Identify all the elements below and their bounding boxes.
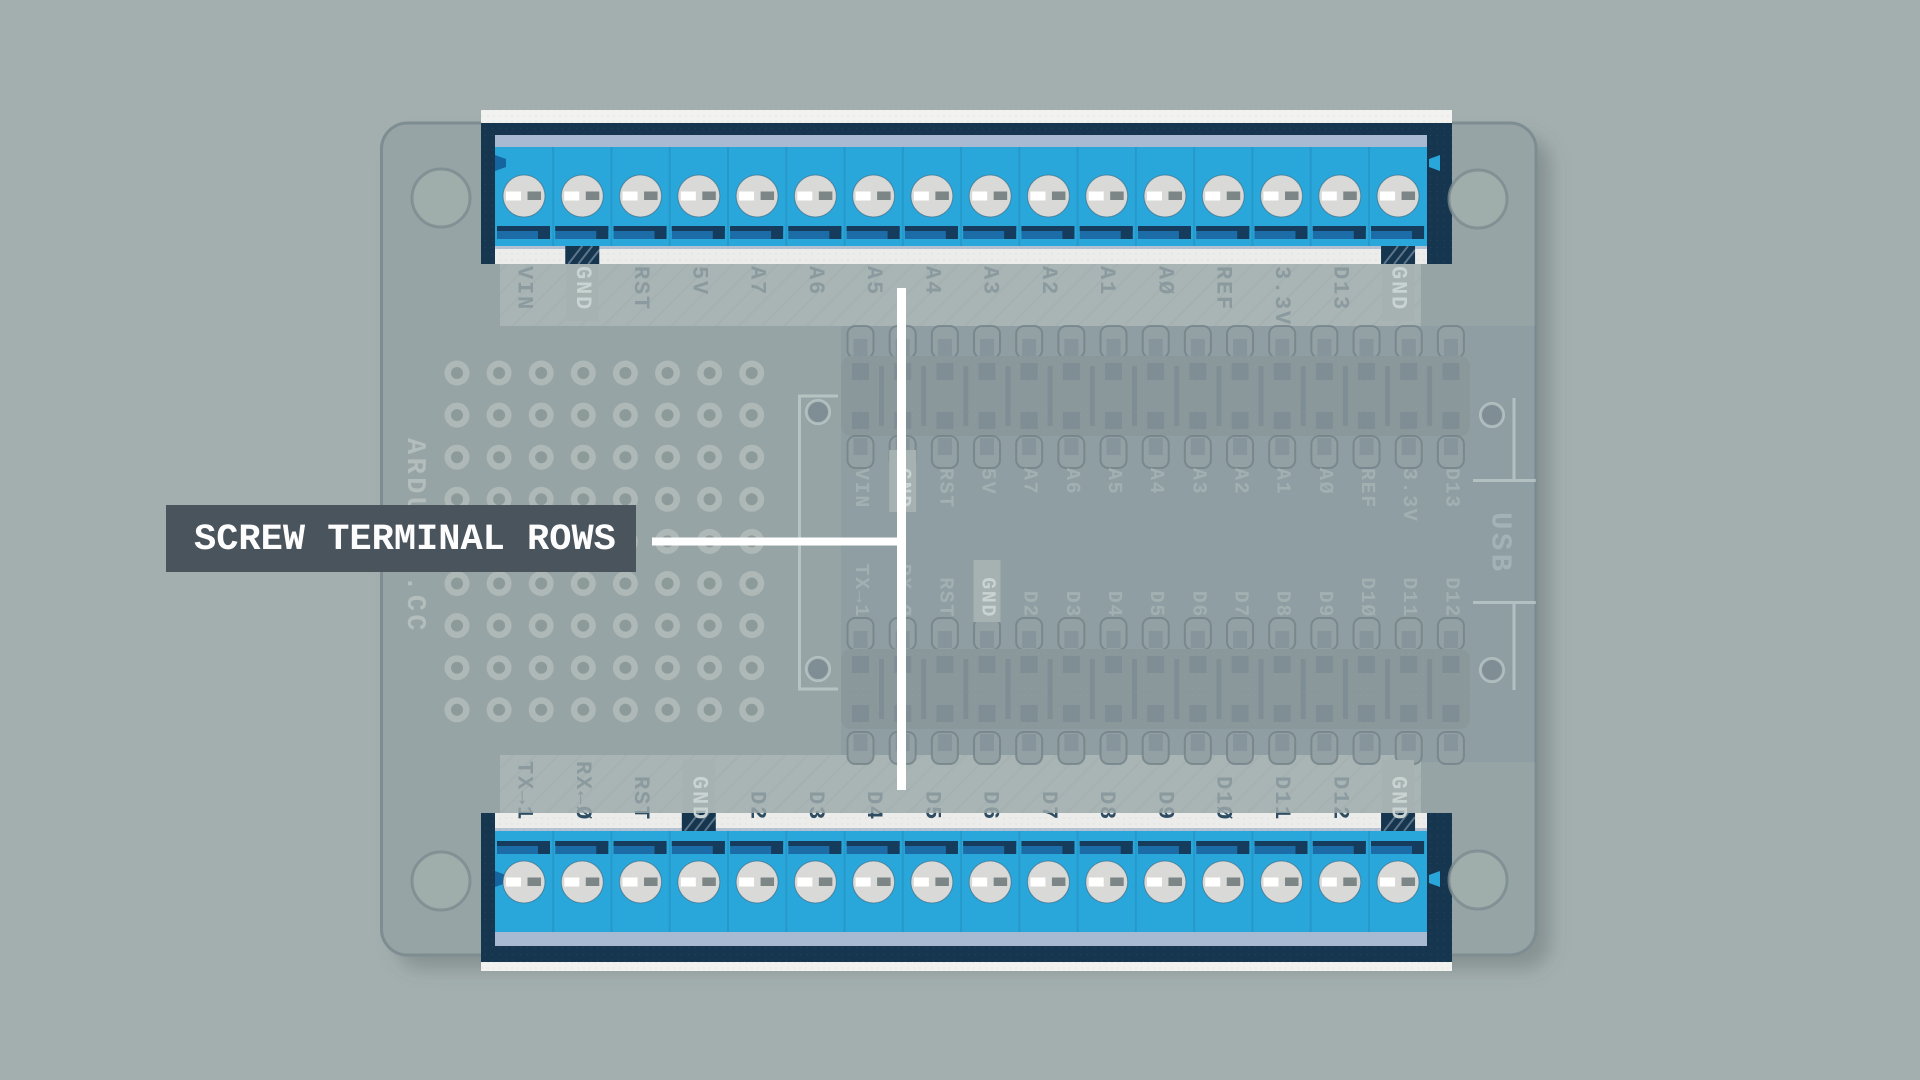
svg-text:A3: A3: [1186, 468, 1209, 495]
svg-text:A1: A1: [1094, 266, 1119, 296]
svg-text:A5: A5: [1102, 468, 1125, 495]
svg-text:A6: A6: [1060, 468, 1083, 495]
svg-text:A3: A3: [978, 266, 1003, 296]
svg-text:D3: D3: [1060, 591, 1083, 618]
svg-text:A7: A7: [1018, 468, 1041, 495]
svg-text:A4: A4: [1144, 468, 1167, 495]
svg-text:D9: D9: [1313, 591, 1336, 618]
svg-text:D13: D13: [1327, 266, 1352, 311]
svg-text:RX←Ø: RX←Ø: [570, 761, 595, 821]
svg-text:A2: A2: [1229, 468, 1252, 495]
svg-text:D8: D8: [1271, 591, 1294, 618]
svg-text:TX→1: TX→1: [512, 761, 537, 821]
svg-text:D6: D6: [1186, 591, 1209, 618]
svg-text:D7: D7: [1229, 591, 1252, 618]
svg-text:D5: D5: [1144, 591, 1167, 618]
svg-text:5V: 5V: [976, 468, 999, 495]
svg-text:D13: D13: [1439, 468, 1462, 509]
svg-text:D2: D2: [1018, 591, 1041, 618]
svg-text:VIN: VIN: [512, 266, 537, 311]
svg-text:D11: D11: [1397, 577, 1420, 618]
svg-text:D1Ø: D1Ø: [1355, 577, 1378, 618]
svg-text:REF: REF: [1355, 468, 1378, 509]
svg-text:A4: A4: [919, 266, 944, 296]
svg-text:A5: A5: [861, 266, 886, 296]
svg-text:D4: D4: [1102, 591, 1125, 618]
svg-text:VIN: VIN: [849, 468, 872, 509]
svg-text:TX→1: TX→1: [849, 564, 872, 618]
svg-text:3.3V: 3.3V: [1269, 266, 1294, 326]
svg-text:RST: RST: [933, 468, 956, 509]
svg-text:REF: REF: [1211, 266, 1236, 311]
svg-text:5V: 5V: [686, 266, 711, 296]
svg-text:GND: GND: [976, 577, 999, 618]
svg-text:A6: A6: [803, 266, 828, 296]
svg-text:SCREW TERMINAL ROWS: SCREW TERMINAL ROWS: [194, 519, 616, 561]
svg-text:GND: GND: [1386, 266, 1411, 311]
svg-text:GND: GND: [686, 776, 711, 821]
svg-text:GND: GND: [1386, 776, 1411, 821]
svg-text:A1: A1: [1271, 468, 1294, 495]
svg-text:D12: D12: [1439, 577, 1462, 618]
svg-text:RST: RST: [628, 266, 653, 311]
svg-text:AØ: AØ: [1152, 266, 1177, 296]
svg-text:A7: A7: [745, 266, 770, 296]
svg-text:AØ: AØ: [1313, 468, 1336, 495]
svg-text:RST: RST: [933, 577, 956, 618]
svg-text:3.3V: 3.3V: [1397, 468, 1420, 522]
svg-text:USB: USB: [1484, 512, 1517, 575]
svg-text:GND: GND: [570, 266, 595, 311]
svg-text:A2: A2: [1036, 266, 1061, 296]
